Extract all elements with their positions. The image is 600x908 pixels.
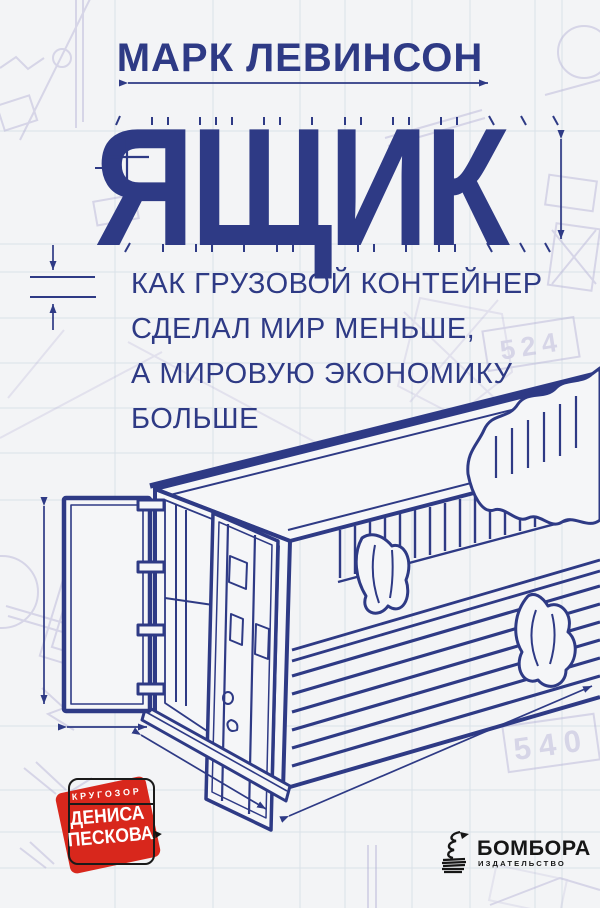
- book-cover: 524 540 МАРК ЛЕВИНС: [0, 0, 600, 908]
- badge-text: КРУГОЗОР ДЕНИСА ПЕСКОВА▶: [59, 780, 158, 870]
- subtitle-line-2: СДЕЛАЛ МИР МЕНЬШЕ,: [131, 307, 551, 352]
- container-door-left: [64, 498, 164, 711]
- author-name: МАРК ЛЕВИНСОН: [0, 38, 600, 78]
- subtitle-line-4: БОЛЬШЕ: [131, 397, 551, 442]
- badge-arrow-icon: ▶: [155, 828, 162, 839]
- publisher-tagline: ИЗДАТЕЛЬСТВО: [478, 859, 566, 868]
- subtitle: КАК ГРУЗОВОЙ КОНТЕЙНЕР СДЕЛАЛ МИР МЕНЬШЕ…: [131, 262, 551, 442]
- series-badge: КРУГОЗОР ДЕНИСА ПЕСКОВА▶: [48, 770, 178, 900]
- badge-series-label: КРУГОЗОР: [59, 785, 152, 803]
- cargo-tarp-middle: [356, 535, 409, 613]
- subtitle-line-3: А МИРОВУЮ ЭКОНОМИКУ: [131, 352, 551, 397]
- publisher-name: БОМБОРА: [477, 836, 591, 861]
- bombora-icon: [440, 830, 470, 874]
- subtitle-line-1: КАК ГРУЗОВОЙ КОНТЕЙНЕР: [131, 262, 551, 307]
- container-length-arrow: [289, 686, 592, 816]
- blueprint-dimension-label-540: 540: [511, 722, 591, 767]
- badge-curator-line2: ПЕСКОВА▶: [67, 823, 151, 852]
- cargo-tarp-bottom: [516, 594, 576, 686]
- door-hinges: [138, 500, 164, 694]
- book-title: ЯЩИК: [51, 103, 549, 271]
- publisher-logo: БОМБОРА ИЗДАТЕЛЬСТВО: [440, 830, 600, 880]
- container-door-right: [206, 513, 278, 830]
- container-front-face: [155, 489, 290, 790]
